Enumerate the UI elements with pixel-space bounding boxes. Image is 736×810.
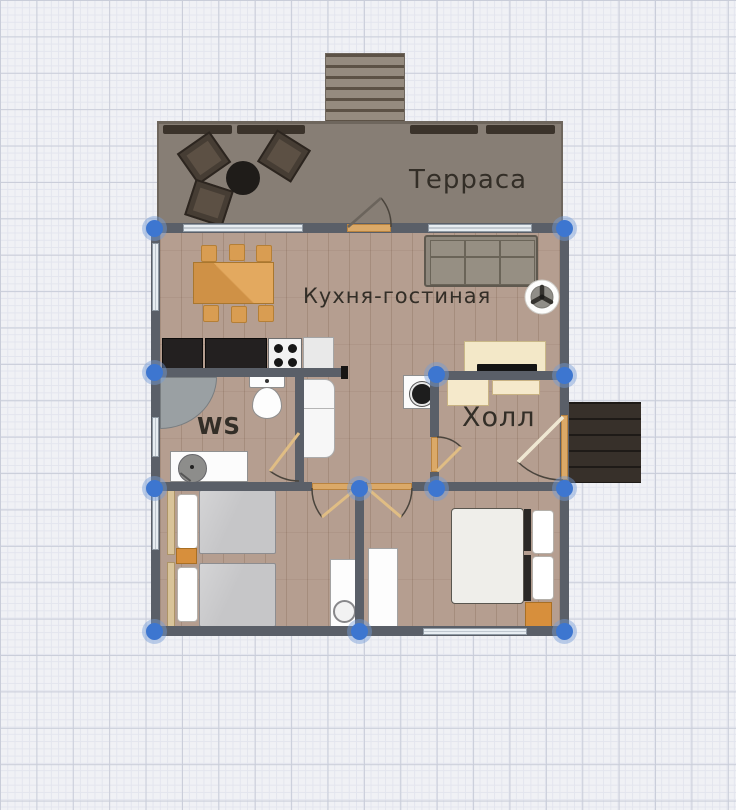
dining-chair[interactable]	[256, 245, 272, 262]
single-bed[interactable]	[199, 490, 276, 554]
pillow[interactable]	[177, 567, 198, 622]
bed-headboard[interactable]	[167, 562, 175, 628]
wardrobe[interactable]	[368, 548, 398, 628]
sofa-seat	[500, 257, 535, 285]
room-label-kitchen-living: Кухня-гостиная	[303, 284, 491, 308]
terrace-railing[interactable]	[163, 125, 232, 134]
fridge[interactable]	[302, 379, 335, 458]
floor-plan-canvas[interactable]: Терраса WS Холл	[0, 0, 736, 810]
dining-chair[interactable]	[229, 244, 245, 261]
wall-end-cap	[341, 366, 348, 379]
window[interactable]	[183, 224, 303, 232]
bed-headboard[interactable]	[167, 489, 175, 555]
burner-icon	[288, 358, 297, 367]
selection-handle[interactable]	[351, 623, 368, 640]
selection-handle[interactable]	[556, 367, 573, 384]
pillow[interactable]	[532, 556, 554, 600]
sink-drain-icon	[190, 465, 194, 469]
selection-handle[interactable]	[146, 364, 163, 381]
burner-icon	[274, 344, 283, 353]
single-bed[interactable]	[199, 563, 276, 627]
stool[interactable]	[333, 600, 356, 623]
hall-bench[interactable]	[492, 380, 540, 395]
toilet-bowl[interactable]	[252, 387, 282, 419]
burner-icon	[288, 344, 297, 353]
door-terrace-threshold[interactable]	[347, 224, 391, 232]
wall-ws-top[interactable]	[151, 368, 304, 377]
bed-frame-bar	[524, 509, 531, 551]
pillow[interactable]	[177, 494, 198, 549]
armchair-cushion	[193, 188, 225, 219]
vanity-counter[interactable]	[170, 451, 248, 482]
sofa-cushion	[465, 240, 500, 257]
terrace-steps[interactable]	[325, 53, 405, 122]
dining-chair[interactable]	[231, 306, 247, 323]
sofa-cushion	[430, 240, 465, 257]
nightstand[interactable]	[525, 602, 552, 628]
round-coffee-table[interactable]	[226, 161, 260, 195]
selection-handle[interactable]	[428, 366, 445, 383]
window[interactable]	[152, 496, 159, 550]
wall-bedrooms-top[interactable]	[151, 482, 312, 491]
dining-table[interactable]	[193, 262, 274, 304]
entrance-porch[interactable]	[565, 402, 641, 483]
kitchen-counter[interactable]	[162, 338, 203, 372]
terrace-railing[interactable]	[237, 125, 305, 134]
stove[interactable]	[268, 338, 302, 372]
window[interactable]	[152, 243, 159, 311]
dining-chair[interactable]	[203, 305, 219, 322]
room-label-ws: WS	[197, 414, 241, 440]
burner-icon	[274, 358, 283, 367]
selection-handle[interactable]	[556, 480, 573, 497]
door-entrance-threshold[interactable]	[561, 415, 568, 480]
fridge-door-split	[303, 408, 334, 409]
sofa-seat	[465, 257, 500, 285]
pillow[interactable]	[532, 510, 554, 554]
nightstand[interactable]	[176, 548, 197, 564]
door-hall-threshold[interactable]	[431, 437, 438, 472]
wall-bedroom-divider[interactable]	[355, 482, 364, 636]
terrace-railing[interactable]	[486, 125, 555, 134]
selection-handle[interactable]	[351, 480, 368, 497]
room-label-terrace: Терраса	[409, 165, 527, 195]
selection-handle[interactable]	[428, 480, 445, 497]
sofa-seat	[430, 257, 465, 285]
wall-ws-right[interactable]	[295, 368, 304, 490]
window[interactable]	[152, 417, 159, 457]
selection-handle[interactable]	[146, 480, 163, 497]
sofa[interactable]	[424, 235, 538, 287]
double-bed[interactable]	[451, 508, 524, 604]
kitchen-sink-cabinet[interactable]	[303, 337, 334, 372]
window[interactable]	[428, 224, 532, 232]
sofa-cushion	[500, 240, 535, 257]
terrace-railing[interactable]	[410, 125, 478, 134]
selection-handle[interactable]	[146, 220, 163, 237]
dining-chair[interactable]	[201, 245, 217, 262]
toilet-flush-button-icon	[265, 379, 269, 383]
door-bedroom-right-threshold[interactable]	[367, 483, 412, 490]
dining-chair[interactable]	[258, 305, 274, 322]
bed-frame-bar	[524, 555, 531, 601]
room-label-hall: Холл	[462, 402, 536, 433]
kitchen-counter[interactable]	[205, 338, 267, 372]
wall-hall-top[interactable]	[437, 371, 569, 380]
window[interactable]	[423, 628, 527, 635]
armchair-cushion	[186, 141, 221, 176]
selection-handle[interactable]	[556, 220, 573, 237]
selection-handle[interactable]	[556, 623, 573, 640]
armchair-cushion	[267, 139, 302, 173]
selection-handle[interactable]	[146, 623, 163, 640]
